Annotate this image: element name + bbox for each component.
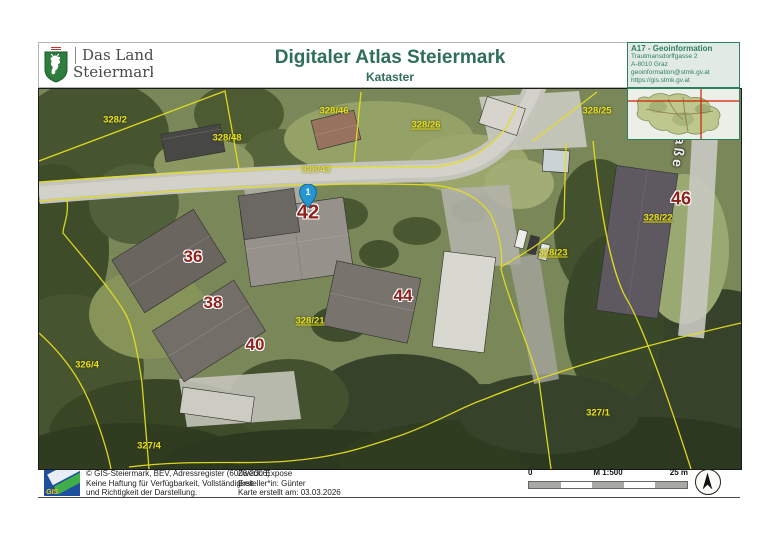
contact-street: Trautmansdorffgasse 2 bbox=[631, 53, 736, 61]
scale-bar: 0 M 1:500 25 m bbox=[528, 468, 688, 489]
gis-steiermark-logo-icon: GIS bbox=[44, 470, 80, 496]
scale-zero-label: 0 bbox=[528, 468, 532, 477]
logo-line2: Steiermark bbox=[73, 64, 158, 81]
map-print-page: Das Land Steiermark Digitaler Atlas Stei… bbox=[0, 0, 768, 543]
created-line: Karte erstellt am: 03.03.2026 bbox=[238, 488, 341, 498]
logo-wordmark: Das Land Steiermark bbox=[75, 47, 158, 81]
land-steiermark-logo: Das Land Steiermark bbox=[38, 42, 154, 88]
contact-box: A17 - Geoinformation Trautmansdorffgasse… bbox=[627, 42, 740, 88]
location-marker-pin: 1 bbox=[299, 184, 317, 208]
purpose-block: Zweck: Expose Ersteller*in: Günter Karte… bbox=[238, 469, 341, 498]
contact-email: geoinformation@stmk.gv.at bbox=[631, 69, 736, 77]
north-arrow-icon bbox=[695, 469, 721, 495]
styria-overview-map bbox=[628, 89, 739, 139]
contact-city: A-8010 Graz bbox=[631, 61, 736, 69]
aerial-photo bbox=[39, 89, 741, 469]
gis-logo-text: GIS bbox=[46, 489, 58, 496]
contact-department: A17 - Geoinformation bbox=[631, 45, 736, 53]
scale-ratio-label: M 1:500 bbox=[593, 468, 622, 477]
footer: GIS © GIS-Steiermark, BEV, Adressregiste… bbox=[38, 468, 740, 498]
purpose-line: Zweck: Expose bbox=[238, 469, 341, 479]
page-title: Digitaler Atlas Steiermark bbox=[153, 47, 627, 69]
marker-number: 1 bbox=[299, 187, 317, 197]
scale-max-label: 25 m bbox=[670, 468, 688, 477]
creator-line: Ersteller*in: Günter bbox=[238, 479, 341, 489]
logo-line1: Das Land bbox=[75, 47, 158, 64]
overview-map-inset bbox=[627, 88, 740, 140]
steiermark-shield-icon bbox=[43, 47, 69, 88]
title-box: Digitaler Atlas Steiermark Kataster bbox=[153, 42, 628, 88]
contact-url: https://gis.stmk.gv.at bbox=[631, 77, 736, 85]
page-subtitle: Kataster bbox=[153, 70, 627, 84]
aerial-map bbox=[38, 88, 742, 470]
scale-bar-segments bbox=[528, 481, 688, 489]
